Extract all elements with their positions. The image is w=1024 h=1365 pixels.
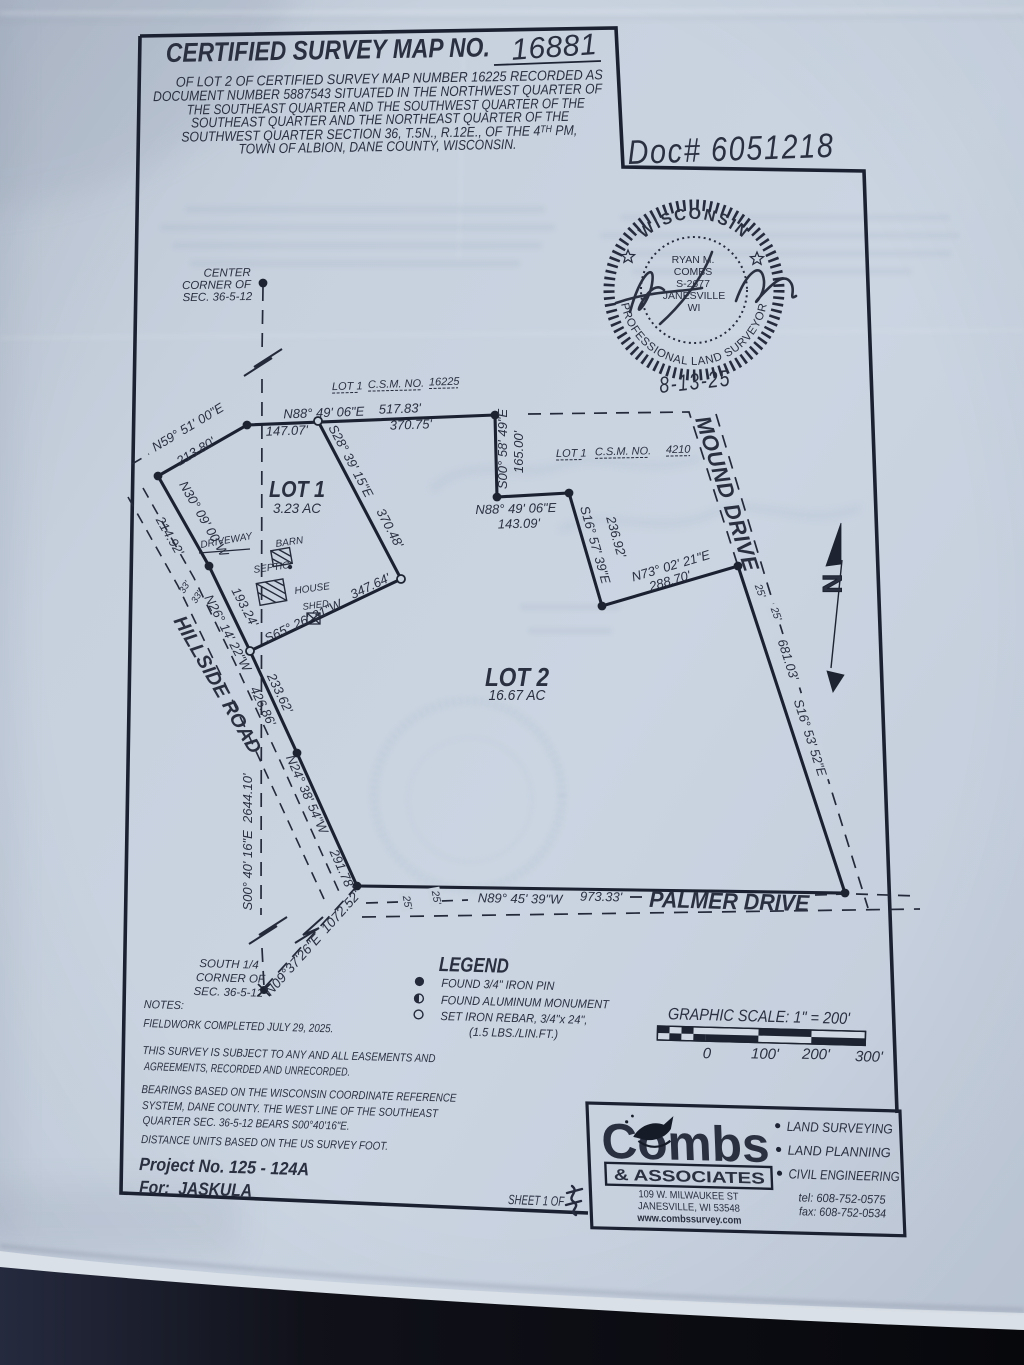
svg-text:PALMER DRIVE: PALMER DRIVE (649, 886, 810, 916)
svg-text:147.07': 147.07' (265, 422, 308, 438)
svg-text:For: JASKULA: For: JASKULA (139, 1177, 253, 1201)
svg-text:SHEET 1 OF: SHEET 1 OF (508, 1192, 565, 1209)
svg-text:C.S.M. NO.: C.S.M. NO. (368, 378, 425, 391)
svg-text:S00° 58' 49"E: S00° 58' 49"E (495, 409, 510, 490)
svg-text:N: N (817, 574, 847, 594)
svg-text:973.33': 973.33' (580, 889, 623, 905)
svg-text:CIVIL ENGINEERING: CIVIL ENGINEERING (788, 1166, 900, 1184)
svg-text:NOTES:: NOTES: (144, 999, 184, 1012)
svg-text:LOT 1: LOT 1 (556, 447, 587, 460)
svg-text:WI: WI (688, 302, 701, 314)
svg-text:16225: 16225 (429, 376, 461, 389)
svg-text:165.00': 165.00' (511, 430, 526, 473)
svg-text:370.75': 370.75' (389, 416, 432, 432)
svg-text:fax: 608-752-0534: fax: 608-752-0534 (799, 1204, 887, 1220)
svg-text:N88° 49' 06"E: N88° 49' 06"E (283, 404, 365, 422)
svg-text:300': 300' (855, 1048, 884, 1066)
svg-text:LEGEND: LEGEND (439, 953, 510, 978)
svg-text:517.83': 517.83' (378, 400, 421, 416)
svg-text:4210: 4210 (666, 444, 692, 456)
svg-text:N88° 49' 06"E: N88° 49' 06"E (475, 500, 557, 517)
svg-text:CORNER OF: CORNER OF (196, 972, 266, 986)
svg-text:N89° 45' 39"W: N89° 45' 39"W (478, 890, 565, 907)
svg-text:LAND SURVEYING: LAND SURVEYING (786, 1119, 893, 1137)
svg-text:SEC. 36-5-12: SEC. 36-5-12 (193, 986, 264, 1000)
svg-text:100': 100' (751, 1045, 780, 1063)
svg-text:LAND PLANNING: LAND PLANNING (787, 1143, 891, 1161)
svg-text:LOT 1: LOT 1 (269, 476, 325, 502)
svg-text:CERTIFIED SURVEY MAP NO.: CERTIFIED SURVEY MAP NO. (166, 32, 490, 68)
svg-text:SEC. 36-5-12: SEC. 36-5-12 (182, 291, 252, 304)
svg-text:CENTER: CENTER (203, 267, 250, 280)
svg-text:0: 0 (703, 1045, 712, 1062)
svg-text:(1.5 LBS./LIN.FT.): (1.5 LBS./LIN.FT.) (469, 1025, 558, 1041)
svg-text:Doc# 6051218: Doc# 6051218 (627, 127, 835, 172)
svg-text:SOUTH 1/4: SOUTH 1/4 (199, 958, 259, 972)
svg-text:16.67 AC: 16.67 AC (489, 687, 546, 704)
svg-text:3.23 AC: 3.23 AC (273, 500, 322, 516)
svg-text:200': 200' (801, 1046, 831, 1064)
svg-text:COMBS: COMBS (674, 266, 713, 278)
svg-text:C.S.M. NO.: C.S.M. NO. (595, 445, 651, 458)
svg-text:S00° 40' 16"E 2644.10': S00° 40' 16"E 2644.10' (240, 773, 255, 910)
svg-text:FOUND 3/4" IRON PIN: FOUND 3/4" IRON PIN (441, 976, 555, 993)
svg-text:LOT 1: LOT 1 (332, 380, 363, 393)
svg-text:143.09': 143.09' (498, 515, 541, 531)
